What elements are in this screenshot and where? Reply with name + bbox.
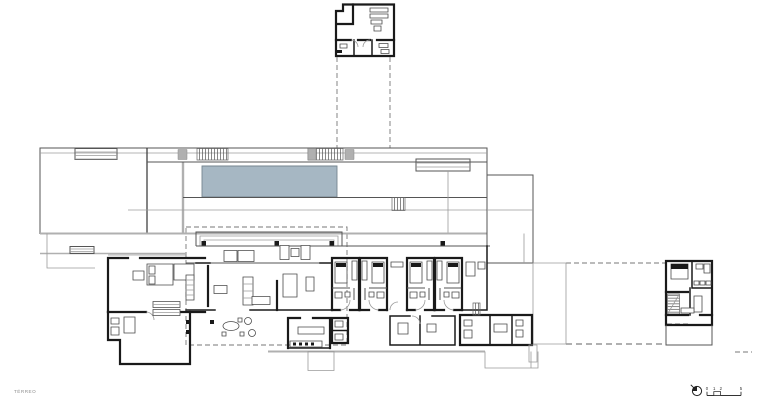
column [330,241,335,246]
scale-tick-label-1: 1 [713,386,716,391]
scale-tick-label-5: 5 [740,386,743,391]
pool-steps-hatch [197,149,228,161]
guest-annex-plan [666,261,712,345]
kitchen-island [298,327,324,334]
terrace-platforms [268,345,538,371]
column [441,241,446,246]
pool-house-annex-plan [336,5,394,57]
column [202,241,207,246]
dining-table [223,322,239,331]
stair-top-left [75,149,117,160]
floor-plan-page: TÉRREO 0 1 2 5 [0,0,759,403]
scale-tick-label-2: 2 [720,386,723,391]
scale-tick-label-0: 0 [706,386,709,391]
north-arrow-icon [691,385,702,396]
bedroom-suite [360,258,387,310]
footer: TÉRREO 0 1 2 5 [14,385,743,396]
stair-hatch [392,198,405,211]
swimming-pool [202,166,337,197]
side-court [533,263,566,344]
column [275,241,280,246]
bedroom-suite [407,258,434,310]
floor-label: TÉRREO [14,388,36,394]
bedroom-suite [435,258,462,310]
floor-plan-drawing: TÉRREO 0 1 2 5 [0,0,759,403]
scale-bar: 0 1 2 5 [706,386,743,396]
bedroom-suite [332,258,359,310]
bedroom-suites-wing [332,246,487,310]
louver-strip [416,159,470,171]
